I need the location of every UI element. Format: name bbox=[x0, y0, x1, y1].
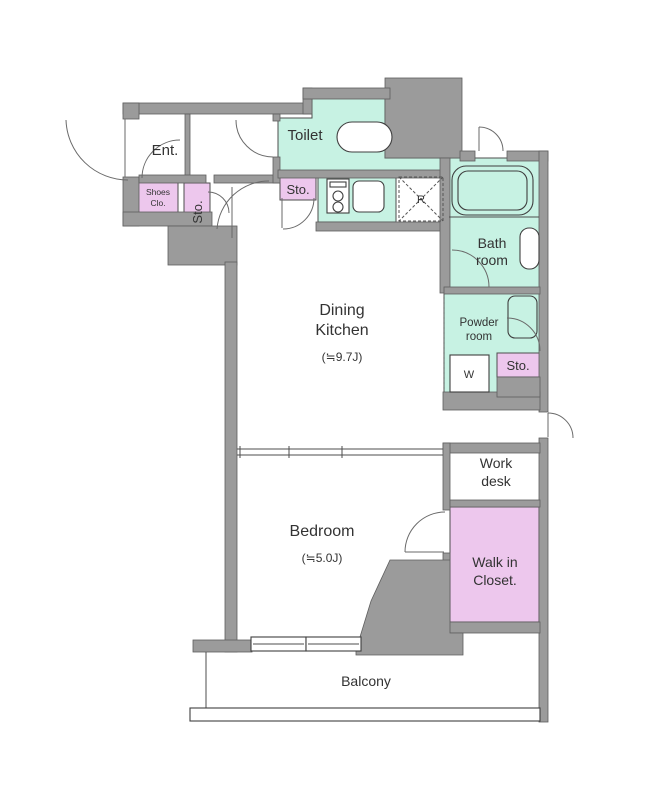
wic-door-arc bbox=[405, 512, 445, 552]
label-shoes-1: Shoes bbox=[146, 187, 170, 197]
label-dk-2: Kitchen bbox=[315, 322, 368, 339]
bathtub-outer bbox=[452, 166, 533, 215]
wall-balcony-left-stub bbox=[193, 640, 252, 652]
kitchen-sink bbox=[353, 181, 384, 212]
powder-vanity bbox=[508, 296, 537, 338]
label-wic-2: Closet. bbox=[473, 572, 517, 588]
label-ent-storage: Sto. bbox=[190, 200, 205, 223]
wall-right-lower bbox=[539, 438, 548, 722]
wall-wic-bottom bbox=[448, 622, 540, 633]
ent-storage-door-arc bbox=[208, 192, 229, 213]
label-toilet: Toilet bbox=[287, 127, 323, 144]
wall-ent-hall-divider bbox=[185, 114, 190, 177]
label-workdesk-1: Work bbox=[480, 455, 513, 471]
wall-diagonal-mass bbox=[356, 560, 463, 655]
wall-dk-left bbox=[225, 262, 237, 652]
label-powder-1: Powder bbox=[460, 317, 499, 329]
toilet-fixture bbox=[337, 122, 392, 152]
label-powder-storage: Sto. bbox=[506, 358, 529, 373]
toilet-door-arc bbox=[236, 120, 273, 157]
label-powder-2: room bbox=[466, 331, 492, 343]
wall-workdesk-top bbox=[443, 443, 540, 453]
stove-burner-1 bbox=[333, 191, 343, 201]
wall-top-toilet bbox=[303, 88, 390, 99]
label-shoes-2: Clo. bbox=[150, 198, 165, 208]
label-refrigerator: R bbox=[417, 194, 425, 206]
label-wic-1: Walk in bbox=[472, 554, 517, 570]
wall-left-upper bbox=[123, 103, 139, 119]
label-entrance: Ent. bbox=[152, 142, 179, 159]
wall-hall-bottom-right bbox=[214, 175, 280, 183]
right-door-arc bbox=[548, 413, 573, 438]
sliding-partition bbox=[237, 446, 443, 458]
label-bedroom: Bedroom bbox=[290, 523, 355, 540]
label-workdesk-2: desk bbox=[481, 473, 512, 489]
bath-sink bbox=[520, 228, 539, 269]
wall-workdesk-wic-divider bbox=[450, 500, 540, 507]
wall-toilet-jamb-top bbox=[273, 114, 280, 121]
floor-plan-svg: Ent. Shoes Clo. Sto. Toilet Sto. R Bath … bbox=[0, 0, 665, 800]
corridor-door-arc bbox=[217, 181, 269, 229]
wall-hall-bottom-left bbox=[139, 175, 206, 183]
floor-plan-page: Ent. Shoes Clo. Sto. Toilet Sto. R Bath … bbox=[0, 0, 665, 800]
stove-grill bbox=[330, 182, 346, 187]
wall-workdesk-left bbox=[443, 443, 450, 510]
label-dk-1: Dining bbox=[319, 302, 364, 319]
label-bath-1: Bath bbox=[478, 235, 507, 251]
label-kitchen-storage: Sto. bbox=[286, 182, 309, 197]
label-washer: W bbox=[464, 369, 475, 381]
service-door-arc bbox=[479, 127, 503, 151]
wall-kitchen-bottom bbox=[316, 222, 448, 231]
wall-right-upper bbox=[539, 151, 548, 412]
wall-bath-top-left bbox=[460, 151, 475, 161]
wall-kitchen-top bbox=[278, 170, 448, 178]
kitchen-storage-arc bbox=[283, 198, 314, 229]
balcony-window bbox=[251, 637, 361, 651]
shaft-block bbox=[385, 78, 462, 158]
label-balcony: Balcony bbox=[341, 673, 391, 689]
wall-bath-powder-divider bbox=[444, 287, 540, 294]
label-bedroom-area: (≒5.0J) bbox=[302, 551, 343, 565]
wall-ent-step bbox=[168, 226, 237, 265]
wall-powder-storage-bottom bbox=[497, 377, 540, 397]
wall-top-entrance bbox=[123, 103, 312, 114]
label-dk-area: (≒9.7J) bbox=[322, 350, 363, 364]
stove-burner-2 bbox=[333, 202, 343, 212]
balcony-ledge bbox=[190, 708, 540, 721]
label-bath-2: room bbox=[476, 252, 508, 268]
entrance-door-arc bbox=[66, 120, 128, 180]
